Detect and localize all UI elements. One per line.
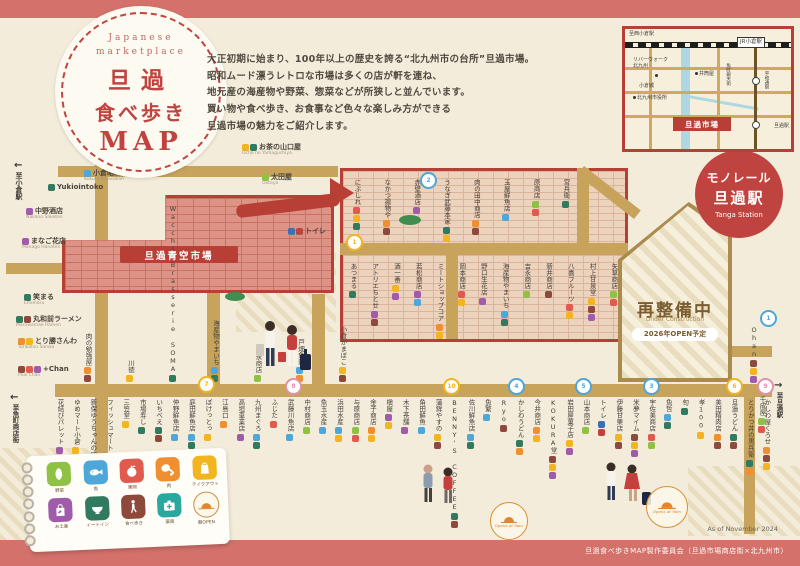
category-icon bbox=[286, 434, 293, 441]
category-icon bbox=[253, 442, 260, 449]
aozora-market-label: 旦過青空市場 bbox=[120, 246, 238, 263]
morning-open-stamp: Opens at 9am bbox=[490, 502, 528, 540]
shop-item: 美田精肉店 bbox=[714, 399, 721, 449]
minimap-kokura-castle: 小倉城 bbox=[639, 83, 654, 89]
shop-item: フィッシュマート bbox=[105, 399, 112, 460]
shop-category-chips bbox=[483, 414, 490, 421]
shop-category-chips bbox=[458, 291, 465, 306]
category-icon bbox=[155, 435, 162, 442]
shop-name: 庭田鮮魚店 bbox=[188, 399, 195, 432]
category-icon bbox=[648, 434, 655, 441]
category-icon bbox=[566, 448, 573, 455]
shop-item: 野口生花店 bbox=[479, 263, 486, 339]
credit-text: 旦過食べ歩きMAP製作委員会（旦過市場商店街×北九州市） bbox=[585, 546, 788, 556]
poi-romaji: Emimaru bbox=[24, 302, 54, 307]
pin-number: 3 bbox=[649, 383, 653, 390]
tanga-stop bbox=[752, 121, 760, 129]
river bbox=[681, 48, 690, 149]
shop-name: 江島口 bbox=[220, 399, 227, 419]
shop-item: 千成屋 bbox=[758, 396, 765, 433]
shop-name: 伊藤甘栗店 bbox=[615, 399, 622, 432]
intro-line: 地元産の海産物や野菜、惣菜などが所狭しと並んでいます。 bbox=[207, 85, 552, 102]
category-icon bbox=[750, 360, 757, 367]
pin-number: 2 bbox=[426, 177, 430, 184]
shop-item: 角田鮮魚 bbox=[418, 399, 425, 434]
category-icon bbox=[339, 367, 346, 374]
category-icon bbox=[211, 367, 218, 374]
shop-name: ゆめマート小倉 bbox=[72, 399, 79, 445]
logo-tagline2: marketplace bbox=[96, 47, 186, 57]
intro-line: 大正初期に始まり、100年以上の歴史を誇る“北九州市の台所”旦過市場。 bbox=[207, 52, 552, 69]
category-icon bbox=[385, 422, 392, 429]
inset-zoom-arrow-head bbox=[330, 178, 354, 208]
pin-number: 8 bbox=[291, 383, 295, 390]
shop-category-chips bbox=[502, 214, 509, 221]
pin-number: 4 bbox=[514, 383, 518, 390]
category-icon bbox=[500, 425, 507, 432]
legend-item-fish: 魚 bbox=[79, 460, 113, 493]
category-icon bbox=[352, 427, 359, 434]
shop-item: 佐川鮮魚店 bbox=[467, 399, 474, 449]
shop-name: かしわうどん bbox=[516, 399, 523, 438]
shop-name: 佐川鮮魚店 bbox=[467, 399, 474, 432]
category-icon bbox=[730, 442, 737, 449]
poi-romaji: TOILET bbox=[288, 236, 326, 241]
shop-category-chips bbox=[383, 220, 390, 235]
poi-item: 中野酒店 Nakano Saketen bbox=[26, 208, 63, 221]
shop-name: 花結びパレット bbox=[56, 399, 63, 445]
shop-name: 川徳 bbox=[126, 360, 133, 373]
category-icon bbox=[138, 427, 145, 434]
shop-item: トイレ bbox=[598, 399, 605, 436]
shop-item: Ryo bbox=[500, 399, 507, 432]
category-icon bbox=[383, 220, 390, 227]
shop-name: いちべえ bbox=[155, 399, 162, 425]
category-icon bbox=[532, 209, 539, 216]
map-logo: Japanese marketplace 旦過 食べ歩き MAP bbox=[55, 6, 227, 178]
category-icon bbox=[353, 223, 360, 230]
shop-name: 金子商店 bbox=[368, 399, 375, 425]
shop-name: 米夢マイム bbox=[631, 399, 638, 432]
pin-number: 1 bbox=[352, 239, 356, 246]
legend-item-vegetables: 野菜 bbox=[42, 461, 76, 494]
poi-romaji: Nakano Saketen bbox=[26, 216, 63, 221]
shop-name: 旦過うどん bbox=[730, 399, 737, 432]
shop-item: 宇佐美商店 bbox=[648, 399, 655, 449]
category-icon bbox=[582, 427, 589, 434]
shop-item: なかつ揚物や bbox=[383, 179, 390, 242]
shop-category-chips bbox=[339, 367, 346, 382]
category-icon bbox=[353, 207, 360, 214]
shop-name: 新保ゆうちゃんの店 bbox=[89, 399, 96, 458]
category-icon bbox=[746, 460, 753, 467]
category-icon bbox=[763, 463, 770, 470]
shop-name: あつまる bbox=[349, 263, 356, 289]
category-icon bbox=[566, 440, 573, 447]
souvenir-bag-icon bbox=[52, 502, 69, 519]
shop-item: 魚哲 bbox=[664, 399, 671, 429]
shop-category-chips bbox=[270, 421, 277, 428]
market-detail-inset: にぶしれ なかつ揚物や 赤壁酒店 うなぎ武藤本家 肉の田中商店 玉屋鮮魚店 原商… bbox=[340, 168, 628, 342]
poi-item: Yukiointoko bbox=[48, 184, 103, 192]
map-pin: 2 bbox=[420, 172, 437, 189]
poi-romaji: Manago Hanaten bbox=[22, 246, 66, 251]
shop-category-chips bbox=[319, 427, 326, 434]
category-icon bbox=[730, 434, 737, 441]
legend-item-morning-open: 朝OPEN bbox=[189, 491, 223, 526]
shop-item: 与原商店 bbox=[352, 399, 359, 442]
shop-name: 小倉かまぼこ bbox=[339, 326, 346, 365]
shop-category-chips bbox=[286, 434, 293, 441]
shop-item: 槇屋 bbox=[385, 399, 392, 429]
category-icon bbox=[549, 456, 556, 463]
shop-name: 美田精肉店 bbox=[714, 399, 721, 432]
category-icon bbox=[615, 442, 622, 449]
shop-category-chips bbox=[171, 434, 178, 441]
category-icon bbox=[472, 228, 479, 235]
poi-item: お茶の山口屋 Ocha no Yamaguchiya bbox=[242, 144, 301, 157]
shop-category-chips bbox=[523, 291, 530, 298]
category-icon bbox=[84, 367, 91, 374]
shop-name: トイレ bbox=[598, 399, 605, 419]
poi-name: トイレ bbox=[305, 228, 326, 236]
shop-item: 魚繁 bbox=[483, 399, 490, 421]
category-icon bbox=[631, 442, 638, 449]
vegetable-icon bbox=[51, 466, 68, 483]
shop-name: 武藤川魚店 bbox=[286, 399, 293, 432]
shop-item: 木下茶舗 bbox=[401, 399, 408, 434]
shop-category-chips bbox=[697, 432, 704, 439]
shop-item: にぶしれ bbox=[353, 179, 360, 242]
intro-line: 買い物や食べ歩き、お食事など色々な楽しみ方ができる bbox=[207, 102, 552, 119]
category-icon bbox=[353, 215, 360, 222]
shop-name: 木下茶舗 bbox=[401, 399, 408, 425]
shop-category-chips bbox=[533, 427, 540, 442]
shop-item: 金子商店 bbox=[368, 399, 375, 442]
poi-romaji: Kokura Showakan bbox=[84, 178, 128, 183]
shop-name: 仲野鮮魚店 bbox=[171, 399, 178, 432]
shop-category-chips bbox=[126, 375, 133, 382]
shop-name: 海産物やまいち bbox=[211, 320, 218, 366]
direction-to-uomachi: ←至魚町商店街 bbox=[10, 392, 20, 443]
shop-item: 花結びパレット bbox=[56, 399, 63, 454]
category-icon bbox=[631, 434, 638, 441]
shop-item: とりかつ丼の黒兵衛 bbox=[746, 399, 753, 475]
shop-name: 八喜フルーツ bbox=[566, 263, 573, 302]
shop-item: 魚玉水産 bbox=[319, 399, 326, 434]
category-icon bbox=[750, 376, 757, 383]
shop-item: 岩田屋菓子店 bbox=[566, 399, 573, 455]
pin-number: 10 bbox=[447, 383, 455, 390]
shop-category-chips bbox=[730, 434, 737, 449]
locator-minimap: 至西小倉駅 JR小倉駅 平和通駅 魚町銀天街 旦過駅 リバーウォーク北九州 井筒… bbox=[622, 26, 794, 152]
category-icon bbox=[414, 299, 421, 306]
category-icon bbox=[501, 311, 508, 318]
category-icon bbox=[648, 442, 655, 449]
shop-category-chips bbox=[56, 447, 63, 454]
legend-item-meat: 肉 bbox=[151, 457, 185, 490]
tanga-map-poster: 旦過青空市場 にぶしれ なかつ揚物や 赤壁酒店 うなぎ武藤本家 肉の田中商 bbox=[0, 0, 800, 566]
shop-name: 新井商店 bbox=[545, 263, 552, 289]
shop-category-chips bbox=[349, 291, 356, 298]
shop-item: 肉の田中商店 bbox=[472, 179, 479, 242]
shop-category-chips bbox=[763, 447, 770, 470]
category-icon bbox=[483, 414, 490, 421]
map-pin: 1 bbox=[346, 234, 363, 251]
map-pin: 6 bbox=[726, 378, 743, 395]
shop-item: 米夢マイム bbox=[631, 399, 638, 457]
shop-item: 庭田鮮魚店 bbox=[188, 399, 195, 449]
shop-name: 吉永商店 bbox=[523, 263, 530, 289]
minimap-riverwalk-dot bbox=[655, 73, 659, 79]
shop-name: とりかつ丼の黒兵衛 bbox=[746, 399, 753, 458]
shop-category-chips bbox=[746, 460, 753, 475]
minimap-izutsuya: 井筒屋 bbox=[695, 71, 714, 77]
category-icon bbox=[714, 434, 721, 441]
category-icon bbox=[352, 435, 359, 442]
category-icon bbox=[204, 434, 211, 441]
shop-name: 酒一番 bbox=[392, 263, 399, 283]
direction-to-tanga-station: →至旦過駅 bbox=[774, 380, 784, 418]
fish-icon bbox=[87, 464, 104, 481]
stamp-text: Opens at 9am bbox=[653, 510, 681, 515]
category-icon bbox=[434, 442, 441, 449]
under-construction-subtitle: Under Construction bbox=[618, 316, 732, 323]
stream bbox=[685, 95, 758, 111]
logo-tagline1: Japanese bbox=[108, 33, 173, 43]
shop-category-chips bbox=[72, 447, 79, 454]
shop-item: 九州まぐろ bbox=[253, 399, 260, 449]
shop-category-chips bbox=[122, 421, 129, 428]
shop-category-chips bbox=[220, 421, 227, 428]
shop-category-chips bbox=[598, 421, 605, 436]
inset-shops-bottom-row: あつまる アトリエちとせ 酒一番 若松商店 ミートショップコア 岡本商店 野口生… bbox=[349, 263, 617, 339]
shop-item: Ohan bbox=[750, 326, 757, 383]
poi-romaji: Ootaya bbox=[262, 182, 292, 187]
shop-name: 市場寿し bbox=[138, 399, 145, 425]
as-of-date: As of November 2024 bbox=[707, 525, 778, 533]
poi-romaji: Plus Chan bbox=[18, 374, 69, 379]
poi-item: 太田屋 Ootaya bbox=[262, 174, 292, 187]
minimap-to-nishikokura: 至西小倉駅 bbox=[629, 31, 654, 37]
category-icon bbox=[392, 293, 399, 300]
shop-name: 赤壁酒店 bbox=[413, 179, 420, 205]
shop-category-chips bbox=[155, 427, 162, 442]
shop-category-chips bbox=[368, 427, 375, 442]
shop-item: KOKURA堂 bbox=[549, 399, 556, 479]
direction-to-kokura: ←至小倉駅 bbox=[14, 160, 24, 200]
poi-item: まなご花店 Manago Hanaten bbox=[22, 238, 66, 251]
shop-category-chips bbox=[253, 434, 260, 449]
road-main-bottom bbox=[55, 384, 772, 397]
category-icon bbox=[319, 427, 326, 434]
shop-category-chips bbox=[681, 408, 688, 415]
shop-item: 原商店 bbox=[532, 179, 539, 242]
shop-category-chips bbox=[566, 304, 573, 319]
shop-name: ぽけっとっ bbox=[204, 399, 211, 432]
pin-number: 1 bbox=[766, 315, 770, 322]
shop-category-chips bbox=[500, 425, 507, 432]
poi-item: とり勝さんわ Torikatsu Sanwa bbox=[18, 338, 77, 351]
category-icon bbox=[270, 421, 277, 428]
shop-item: 市場寿し bbox=[138, 399, 145, 434]
legend-item-eatin: イートイン bbox=[80, 496, 114, 531]
monorail-tanga-station-badge: モノレール 旦過駅 Tanga Station bbox=[695, 150, 783, 238]
station-line2: 旦過駅 bbox=[695, 187, 783, 208]
category-icon bbox=[401, 427, 408, 434]
shop-name: 宮兵衛 bbox=[562, 179, 569, 199]
shop-category-chips bbox=[610, 291, 617, 306]
category-icon bbox=[472, 220, 479, 227]
shop-category-chips bbox=[352, 427, 359, 442]
shop-name: 玉屋鮮魚店 bbox=[502, 179, 509, 212]
pin-number: 6 bbox=[732, 383, 736, 390]
shop-item: 孝100 bbox=[697, 399, 704, 439]
shop-item: 江島口 bbox=[220, 399, 227, 428]
shop-name: ミートショップコア bbox=[436, 263, 443, 322]
intro-line: 旦過市場の魅力をご紹介します。 bbox=[207, 119, 552, 136]
shop-category-chips bbox=[648, 434, 655, 449]
shop-category-chips bbox=[615, 434, 622, 449]
shop-name: 槇屋 bbox=[385, 399, 392, 412]
category-icon bbox=[458, 291, 465, 298]
bowl-icon bbox=[89, 500, 106, 517]
shop-category-chips bbox=[714, 434, 721, 449]
shop-category-chips bbox=[549, 456, 556, 479]
category-icon bbox=[443, 227, 450, 234]
shop-category-chips bbox=[516, 440, 523, 455]
shop-name: ふじた bbox=[270, 399, 277, 419]
legend-item-fruit: 果物 bbox=[115, 458, 149, 491]
category-icon bbox=[434, 434, 441, 441]
legend-item-tabearuki: 食べ歩き bbox=[117, 494, 151, 529]
map-pin: 10 bbox=[443, 378, 460, 395]
category-icon bbox=[763, 447, 770, 454]
shop-category-chips bbox=[467, 434, 474, 449]
shop-name: 千成屋 bbox=[758, 396, 765, 416]
category-icon bbox=[220, 421, 227, 428]
category-icon bbox=[588, 306, 595, 313]
category-icon bbox=[368, 427, 375, 434]
pedestrian-illustration bbox=[256, 318, 312, 384]
shop-item: 海産物やまいち bbox=[501, 263, 508, 339]
category-icon bbox=[385, 414, 392, 421]
shop-name: 魚玉水産 bbox=[319, 399, 326, 425]
shop-name: 浜田水産 bbox=[335, 399, 342, 425]
sunrise-icon bbox=[501, 514, 517, 523]
shop-item: いちべえ bbox=[155, 399, 162, 442]
shop-name: 今井商店 bbox=[533, 399, 540, 425]
shop-name: 魚繁 bbox=[483, 399, 490, 412]
category-icon bbox=[562, 201, 569, 208]
category-icon bbox=[681, 408, 688, 415]
category-icon bbox=[502, 214, 509, 221]
category-icon bbox=[392, 285, 399, 292]
category-icon bbox=[549, 472, 556, 479]
map-pin: 4 bbox=[508, 378, 525, 395]
category-icon bbox=[664, 422, 671, 429]
shop-category-chips bbox=[169, 375, 176, 382]
shop-item: 赤壁酒店 bbox=[413, 179, 420, 242]
shop-name: 与原商店 bbox=[352, 399, 359, 425]
shop-category-chips bbox=[750, 360, 757, 383]
intro-line: 昭和ムード漂うレトロな市場は多くの店が軒を連ね、 bbox=[207, 69, 552, 86]
shop-name: 旬 bbox=[681, 399, 688, 406]
under-construction-hatch bbox=[622, 206, 728, 378]
shop-item: 伊藤甘栗店 bbox=[615, 399, 622, 449]
category-icon bbox=[763, 455, 770, 462]
spiral-binding bbox=[21, 462, 36, 546]
shop-category-chips bbox=[566, 440, 573, 455]
category-icon bbox=[339, 375, 346, 382]
category-icon bbox=[413, 207, 420, 214]
shop-name: 蒲鉾やすの bbox=[434, 399, 441, 432]
shop-name: 肉の田中商店 bbox=[472, 179, 479, 218]
shop-name: 海産物やまいち bbox=[501, 263, 508, 309]
shop-name: 村上甘泉堂 bbox=[588, 263, 595, 296]
category-icon bbox=[436, 324, 443, 331]
shop-category-chips bbox=[562, 201, 569, 208]
category-icon bbox=[545, 291, 552, 298]
walking-person-icon bbox=[125, 498, 142, 515]
pedestrian-illustration bbox=[598, 460, 652, 520]
map-pin: 9 bbox=[757, 378, 774, 395]
minimap-tanga-eki: 旦過駅 bbox=[774, 123, 789, 129]
morning-open-stamp: Opens at 9am bbox=[646, 486, 688, 528]
shop-category-chips bbox=[303, 427, 310, 434]
category-icon bbox=[169, 375, 176, 382]
takeout-bag-icon bbox=[196, 459, 213, 476]
shop-category-chips bbox=[434, 434, 441, 449]
shop-name: 三笠堂 bbox=[122, 399, 129, 419]
sunrise-icon bbox=[658, 499, 676, 509]
shop-name: 岡本商店 bbox=[458, 263, 465, 289]
shop-name: 宇佐美商店 bbox=[648, 399, 655, 432]
shop-item: 新井商店 bbox=[545, 263, 552, 339]
shop-category-chips bbox=[664, 414, 671, 429]
poi-item: +Chan Plus Chan bbox=[18, 366, 69, 379]
shop-name: 孝100 bbox=[697, 399, 704, 430]
shop-item: ゆめマート小倉 bbox=[72, 399, 79, 454]
shop-item: 岡本商店 bbox=[458, 263, 465, 339]
category-icon bbox=[615, 434, 622, 441]
category-icon bbox=[383, 228, 390, 235]
shop-item: 玉屋鮮魚店 bbox=[502, 179, 509, 242]
shop-category-chips bbox=[443, 227, 450, 242]
meat-icon bbox=[160, 461, 177, 478]
shop-category-chips bbox=[501, 311, 508, 326]
category-icon bbox=[155, 427, 162, 434]
shop-category-chips bbox=[188, 434, 195, 449]
category-icon bbox=[516, 448, 523, 455]
map-pin: 7 bbox=[198, 376, 215, 393]
pin-number: 9 bbox=[763, 383, 767, 390]
shop-category-chips bbox=[371, 311, 378, 326]
category-icon bbox=[84, 375, 91, 382]
shop-item: 村上甘泉堂 bbox=[588, 263, 595, 339]
legend-item-souvenir: お土産 bbox=[44, 497, 78, 532]
category-icon bbox=[414, 291, 421, 298]
heiwadori-stop bbox=[752, 77, 760, 85]
shop-item: ふじた bbox=[270, 399, 277, 428]
poi-item: トイレ TOILET bbox=[288, 228, 326, 241]
category-icon bbox=[335, 427, 342, 434]
poi-item: 丸和前ラーメン Maruwamae Ramen bbox=[16, 316, 82, 329]
shop-item: アトリエちとせ bbox=[371, 263, 378, 339]
category-icon bbox=[122, 421, 129, 428]
category-icon bbox=[237, 434, 244, 441]
category-icon bbox=[598, 421, 605, 428]
